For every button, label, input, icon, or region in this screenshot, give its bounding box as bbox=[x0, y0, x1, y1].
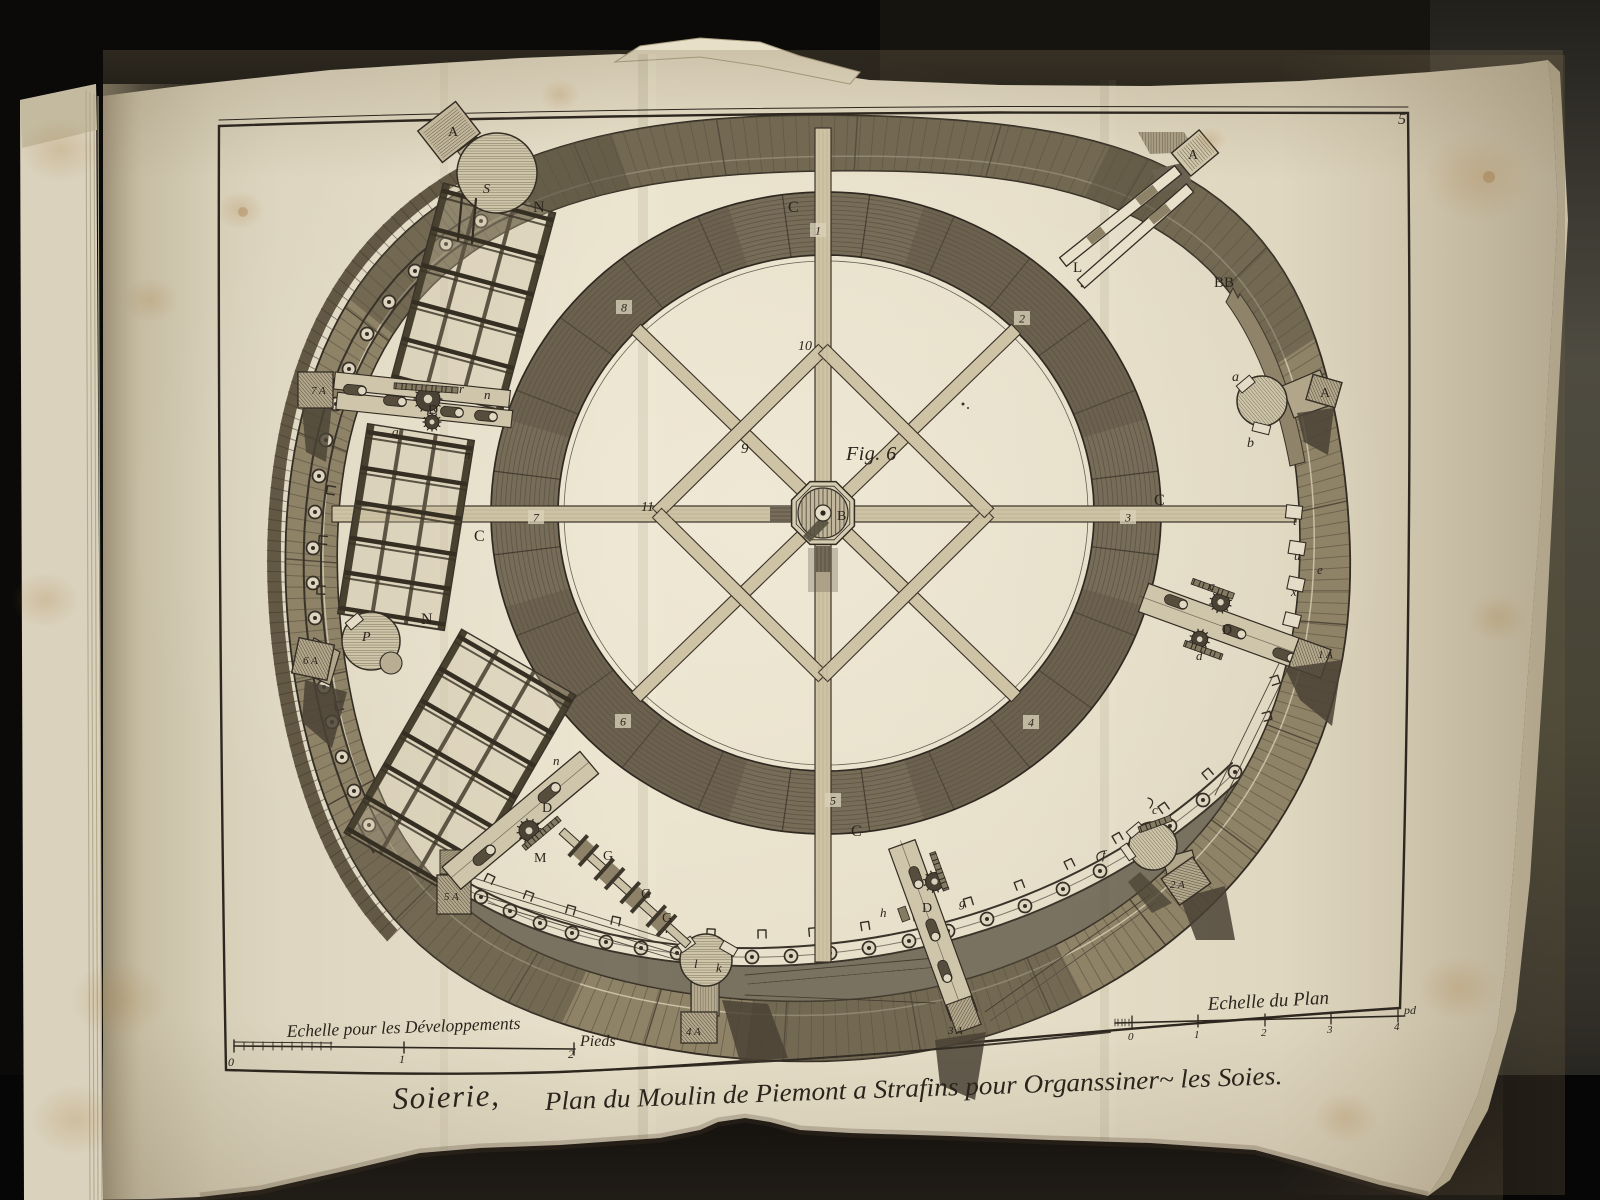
svg-text:0: 0 bbox=[228, 1055, 234, 1069]
svg-text:e: e bbox=[1317, 562, 1323, 577]
svg-text:5 A: 5 A bbox=[444, 891, 459, 903]
svg-text:2 A: 2 A bbox=[1170, 879, 1185, 891]
svg-text:N: N bbox=[533, 199, 545, 216]
svg-text:b: b bbox=[1247, 436, 1254, 451]
svg-text:D: D bbox=[1222, 623, 1232, 638]
svg-text:10: 10 bbox=[798, 339, 812, 354]
svg-text:C: C bbox=[1154, 492, 1165, 509]
svg-text:h: h bbox=[880, 905, 887, 920]
svg-text:M: M bbox=[534, 851, 547, 866]
svg-text:BB: BB bbox=[1214, 275, 1234, 291]
svg-text:n: n bbox=[484, 387, 491, 402]
svg-text:7 A: 7 A bbox=[311, 385, 326, 397]
svg-text:n: n bbox=[553, 753, 560, 768]
svg-text:x: x bbox=[1290, 584, 1297, 599]
svg-text:8: 8 bbox=[621, 301, 627, 315]
svg-text:t: t bbox=[1293, 513, 1297, 528]
svg-text:6: 6 bbox=[620, 715, 626, 729]
svg-text:4: 4 bbox=[1394, 1021, 1400, 1033]
svg-text:Pieds: Pieds bbox=[579, 1033, 616, 1050]
svg-text:G: G bbox=[603, 849, 613, 864]
svg-text:l: l bbox=[694, 956, 698, 971]
svg-text:A: A bbox=[1320, 386, 1331, 401]
svg-text:S: S bbox=[483, 182, 490, 197]
svg-text:11: 11 bbox=[641, 500, 654, 515]
svg-text:N: N bbox=[421, 611, 433, 628]
svg-text:D: D bbox=[428, 403, 438, 418]
svg-text:k: k bbox=[716, 960, 722, 975]
svg-text:A: A bbox=[1188, 148, 1199, 163]
svg-text:L: L bbox=[1073, 260, 1082, 276]
svg-text:C: C bbox=[851, 823, 862, 840]
svg-text:C: C bbox=[474, 528, 485, 545]
svg-text:9: 9 bbox=[741, 441, 749, 457]
svg-text:D: D bbox=[542, 801, 552, 816]
svg-text:0: 0 bbox=[1128, 1031, 1134, 1043]
svg-text:3 A: 3 A bbox=[947, 1025, 963, 1037]
svg-text:1: 1 bbox=[399, 1052, 405, 1066]
svg-text:G: G bbox=[662, 911, 672, 926]
svg-text:2: 2 bbox=[1261, 1027, 1267, 1039]
svg-text:P: P bbox=[361, 630, 371, 645]
svg-text:A: A bbox=[448, 125, 459, 140]
svg-text:1: 1 bbox=[815, 224, 821, 238]
svg-text:3: 3 bbox=[1326, 1024, 1333, 1036]
svg-text:4: 4 bbox=[1028, 716, 1034, 730]
svg-text:5: 5 bbox=[830, 794, 836, 808]
svg-text:6 A: 6 A bbox=[303, 655, 318, 667]
svg-text:B: B bbox=[837, 509, 846, 524]
svg-text:pd: pd bbox=[1403, 1003, 1417, 1017]
svg-text:4 A: 4 A bbox=[686, 1026, 701, 1038]
svg-text:3: 3 bbox=[1124, 511, 1131, 525]
svg-text:Fig. 6: Fig. 6 bbox=[845, 443, 897, 465]
svg-text:Soierie,: Soierie, bbox=[392, 1077, 501, 1116]
svg-text:2: 2 bbox=[1019, 312, 1025, 326]
svg-text:c: c bbox=[1152, 802, 1158, 817]
svg-text:7: 7 bbox=[533, 511, 540, 525]
svg-text:G: G bbox=[641, 887, 651, 902]
svg-text:a: a bbox=[1232, 370, 1239, 385]
svg-text:u: u bbox=[1294, 548, 1301, 563]
svg-text:d: d bbox=[1196, 648, 1203, 663]
svg-text:C: C bbox=[788, 199, 799, 216]
svg-text:5: 5 bbox=[1398, 111, 1406, 128]
svg-text:g: g bbox=[959, 895, 966, 910]
svg-text:1: 1 bbox=[1194, 1029, 1200, 1041]
svg-text:1 A: 1 A bbox=[1318, 649, 1333, 661]
svg-text:q: q bbox=[392, 424, 399, 439]
svg-text:2: 2 bbox=[568, 1047, 574, 1061]
svg-text:c: c bbox=[1209, 578, 1215, 593]
svg-text:D: D bbox=[922, 901, 932, 916]
svg-text:n: n bbox=[464, 447, 471, 462]
